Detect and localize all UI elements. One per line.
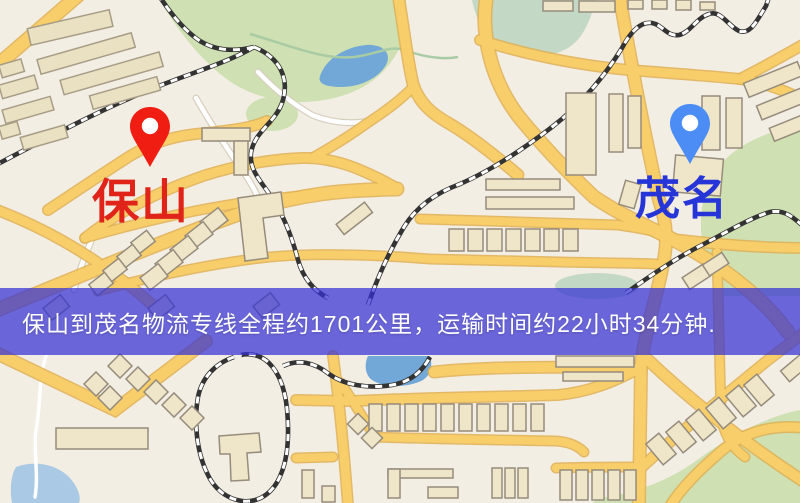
map-canvas xyxy=(0,0,800,503)
destination-marker xyxy=(667,98,713,170)
destination-pin-icon[interactable] xyxy=(667,98,713,170)
destination-marker-label: 茂名 xyxy=(635,176,729,221)
map-view[interactable]: 保山 茂名 保山到茂名物流专线全程约1701公里，运输时间约22小时34分钟. xyxy=(0,0,800,503)
route-info-text: 保山到茂名物流专线全程约1701公里，运输时间约22小时34分钟. xyxy=(22,305,716,339)
origin-marker xyxy=(127,101,173,173)
origin-pin-icon[interactable] xyxy=(127,101,173,173)
origin-marker-label: 保山 xyxy=(92,178,190,225)
route-info-banner: 保山到茂名物流专线全程约1701公里，运输时间约22小时34分钟. xyxy=(0,288,800,355)
